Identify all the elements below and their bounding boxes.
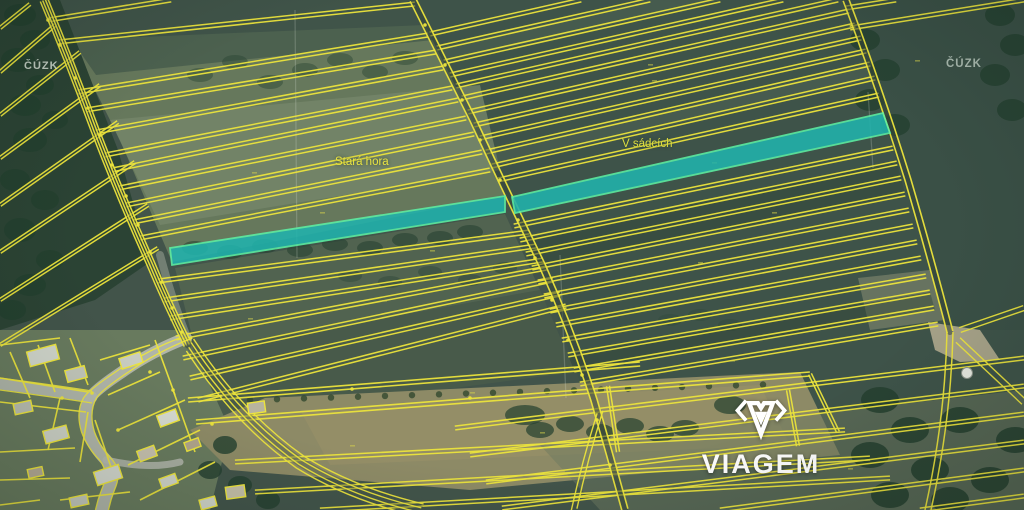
boundary-marker	[350, 387, 354, 391]
orchard-tree	[490, 390, 496, 396]
parcel-number-mark	[652, 80, 657, 82]
parcel-number-mark	[772, 212, 777, 214]
boundary-marker	[608, 463, 612, 467]
orchard-tree	[760, 381, 766, 387]
boundary-marker	[443, 63, 447, 67]
cadastral-map[interactable]: ČÚZK ČÚZK Stará hora V sádcích VIAGEM	[0, 0, 1024, 510]
parcel-number-mark	[560, 470, 565, 472]
parcel-number-mark	[430, 250, 435, 252]
parcel-number-mark	[848, 468, 853, 470]
boundary-marker	[60, 396, 64, 400]
tree-clump	[980, 64, 1010, 86]
parcel-number-mark	[350, 445, 355, 447]
boundary-marker	[498, 178, 502, 182]
boundary-marker	[116, 428, 120, 432]
boundary-marker	[468, 396, 472, 400]
boundary-marker	[423, 23, 427, 27]
parcel-number-mark	[600, 302, 605, 304]
parcel-number-mark	[915, 60, 920, 62]
tree-clump	[13, 128, 47, 152]
boundary-marker	[550, 298, 554, 302]
boundary-marker	[90, 391, 94, 395]
orchard-tree	[436, 391, 442, 397]
boundary-marker	[148, 370, 152, 374]
parcel-number-mark	[730, 360, 735, 362]
parcel-number-mark	[698, 262, 703, 264]
boundary-marker	[533, 256, 537, 260]
orchard-tree	[328, 394, 334, 400]
orchard-tree	[382, 393, 388, 399]
tree-clump	[714, 396, 746, 414]
parcel-number-mark	[252, 172, 257, 174]
boundary-marker	[136, 223, 140, 227]
orchard-tree	[733, 382, 739, 388]
tree-clump	[14, 274, 46, 296]
boundary-marker	[170, 306, 174, 310]
boundary-marker	[516, 218, 520, 222]
boundary-marker	[110, 163, 114, 167]
parcel-number-mark	[540, 432, 545, 434]
boundary-marker	[171, 388, 175, 392]
map-canvas	[0, 0, 1024, 510]
boundary-marker	[46, 18, 50, 22]
boundary-marker	[566, 338, 570, 342]
water-tank	[962, 368, 973, 379]
boundary-marker	[180, 330, 184, 334]
boundary-marker	[595, 418, 599, 422]
boundary-marker	[124, 194, 128, 198]
orchard-tree	[301, 395, 307, 401]
parcel-number-mark	[320, 212, 325, 214]
boundary-marker	[160, 280, 164, 284]
orchard-tree	[274, 396, 280, 402]
boundary-marker	[73, 76, 77, 80]
boundary-marker	[210, 422, 214, 426]
boundary-marker	[478, 138, 482, 142]
building	[225, 485, 245, 500]
orchard-tree	[409, 392, 415, 398]
parcel-number-mark	[248, 318, 253, 320]
orchard-tree	[463, 390, 469, 396]
tree-clump	[556, 416, 584, 432]
boundary-marker	[148, 250, 152, 254]
building	[247, 401, 265, 414]
parcel-number-mark	[470, 392, 475, 394]
orchard-tree	[355, 394, 361, 400]
boundary-marker	[86, 106, 90, 110]
tree-clump	[213, 436, 237, 454]
boundary-marker	[580, 373, 584, 377]
parcel-number-mark	[648, 64, 653, 66]
boundary-marker	[58, 43, 62, 47]
parcel-number-mark	[382, 300, 387, 302]
boundary-marker	[98, 133, 102, 137]
tree-clump	[0, 169, 30, 191]
tree-clump	[31, 190, 59, 210]
orchard-tree	[679, 384, 685, 390]
boundary-marker	[460, 98, 464, 102]
